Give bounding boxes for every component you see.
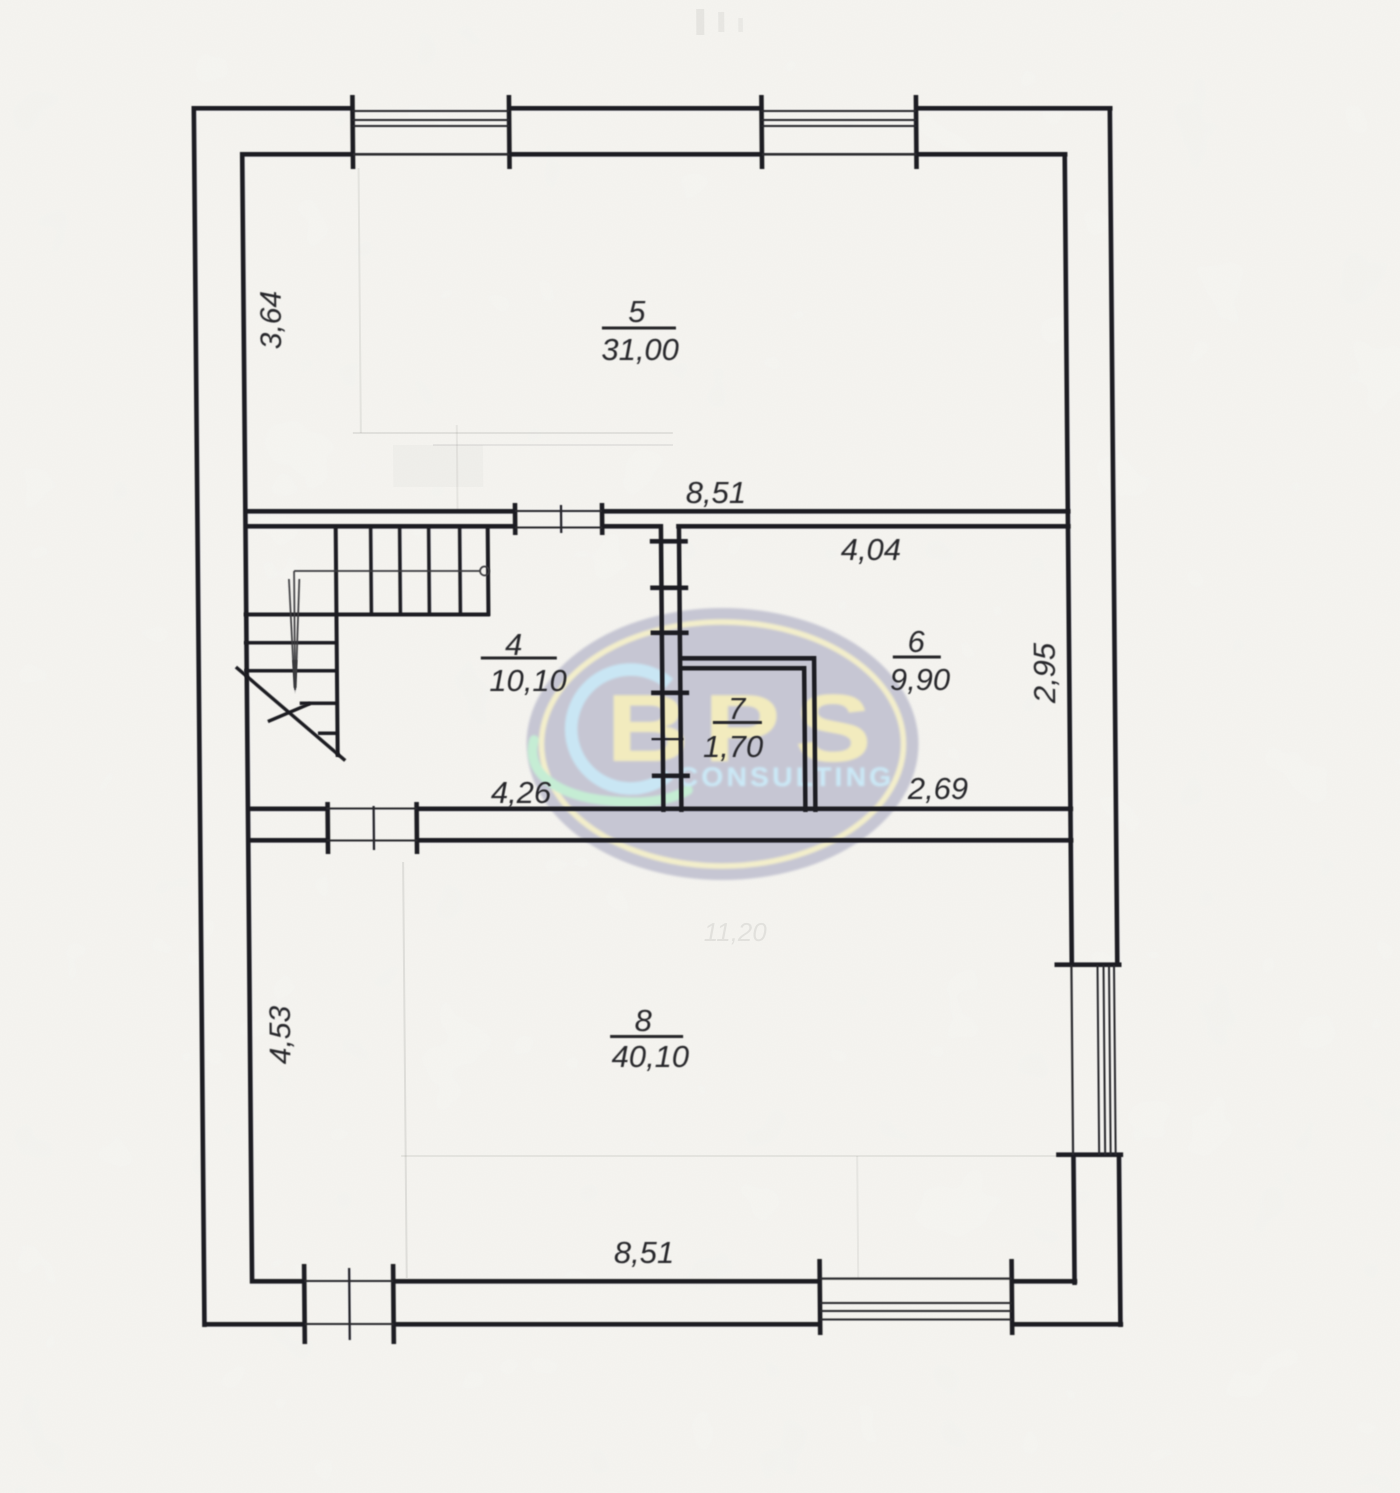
svg-text:2,69: 2,69 (907, 771, 969, 806)
svg-text:6: 6 (907, 624, 925, 659)
svg-text:2,95: 2,95 (1027, 642, 1063, 704)
svg-text:11,20: 11,20 (704, 917, 768, 947)
svg-text:31,00: 31,00 (601, 332, 679, 367)
svg-text:10,10: 10,10 (489, 663, 567, 698)
svg-text:4,53: 4,53 (264, 1005, 298, 1064)
svg-text:CONSULTING: CONSULTING (678, 762, 895, 792)
svg-text:1,70: 1,70 (703, 729, 764, 764)
svg-text:40,10: 40,10 (611, 1039, 689, 1074)
svg-text:8,51: 8,51 (686, 475, 747, 510)
svg-text:7: 7 (728, 691, 747, 726)
svg-text:4,26: 4,26 (491, 775, 552, 810)
svg-text:3,64: 3,64 (255, 291, 289, 349)
svg-text:4,04: 4,04 (841, 532, 902, 567)
svg-text:8,51: 8,51 (614, 1235, 675, 1270)
svg-text:5: 5 (628, 294, 646, 329)
svg-text:8: 8 (635, 1003, 653, 1038)
svg-text:9,90: 9,90 (890, 662, 951, 697)
